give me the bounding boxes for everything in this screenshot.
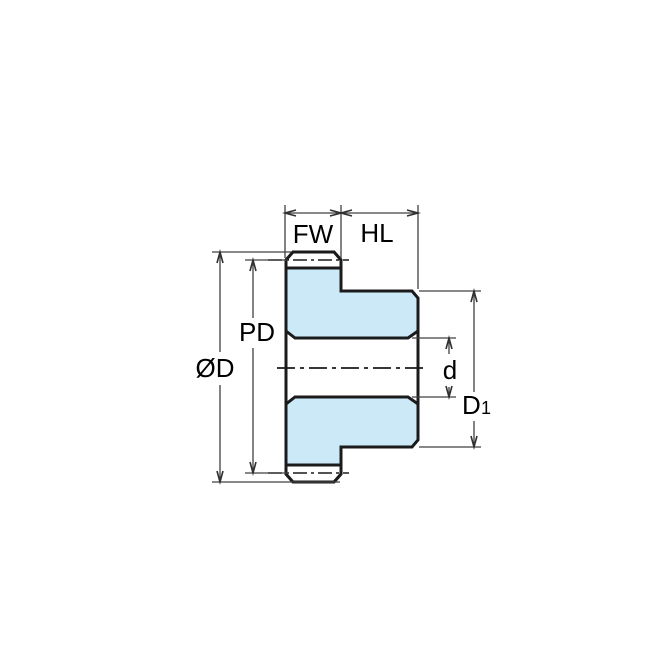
label-hub-diameter-subscript: 1 <box>481 398 491 418</box>
label-outside-diameter: ØD <box>196 353 235 383</box>
gear-diagram-canvas: FW HL ØD PD d D 1 <box>0 0 670 670</box>
label-hub-length: HL <box>360 218 393 248</box>
label-hub-diameter: D <box>462 390 481 420</box>
label-bore-diameter: d <box>443 355 457 385</box>
label-face-width: FW <box>293 219 334 249</box>
label-pitch-diameter: PD <box>239 317 275 347</box>
gear-technical-drawing: FW HL ØD PD d D 1 <box>0 0 670 670</box>
